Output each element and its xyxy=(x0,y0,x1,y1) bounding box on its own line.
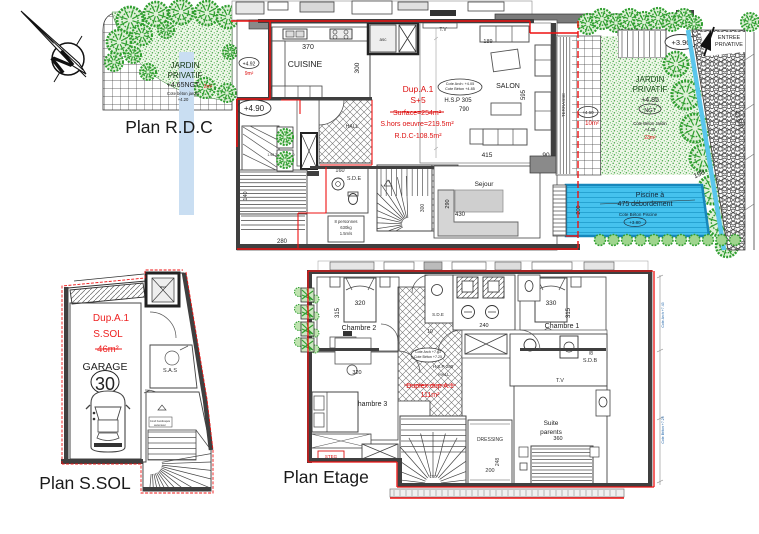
svg-text:JARDIN: JARDIN xyxy=(636,75,665,84)
svg-text:PRIVATIF: PRIVATIF xyxy=(633,85,668,94)
svg-text:asc: asc xyxy=(160,284,166,289)
svg-text:189: 189 xyxy=(483,39,492,45)
svg-text:DRESSING: DRESSING xyxy=(477,437,503,443)
svg-text:Cote béton jardin: Cote béton jardin xyxy=(167,91,200,96)
svg-text:Plan R.D.C: Plan R.D.C xyxy=(125,117,213,137)
svg-text:8 personnes: 8 personnes xyxy=(334,219,357,224)
svg-text:H.S.P 305: H.S.P 305 xyxy=(444,98,472,104)
svg-text:H.S.P 280: H.S.P 280 xyxy=(433,364,454,369)
svg-text:370: 370 xyxy=(302,44,314,51)
svg-text:JARDIN: JARDIN xyxy=(171,61,200,70)
svg-text:300: 300 xyxy=(420,204,426,213)
svg-text:T.V: T.V xyxy=(556,378,564,384)
svg-text:430: 430 xyxy=(455,212,466,218)
svg-text:Cote Arch +7.43: Cote Arch +7.43 xyxy=(415,350,441,354)
svg-text:+4.92: +4.92 xyxy=(243,62,256,68)
svg-text:111m²: 111m² xyxy=(421,392,440,399)
svg-text:315: 315 xyxy=(335,307,341,318)
svg-text:GARAGE: GARAGE xyxy=(83,361,128,373)
svg-text:Cote Béton Jardin: Cote Béton Jardin xyxy=(633,121,667,126)
svg-text:S.A.S: S.A.S xyxy=(163,368,177,374)
svg-text:Plan Etage: Plan Etage xyxy=(283,467,369,487)
svg-text:HALL: HALL xyxy=(438,372,450,377)
svg-text:Cote Béton +4.85: Cote Béton +4.85 xyxy=(445,87,475,91)
svg-text:+4.90: +4.90 xyxy=(244,104,265,113)
svg-text:Piscine à: Piscine à xyxy=(636,192,665,199)
svg-text:Duplex dup A.1: Duplex dup A.1 xyxy=(406,383,454,390)
svg-text:315: 315 xyxy=(566,307,572,318)
svg-text:1.5m/s: 1.5m/s xyxy=(340,231,353,236)
svg-text:46m²: 46m² xyxy=(97,344,119,355)
svg-text:Cote Arch: +4.05: Cote Arch: +4.05 xyxy=(446,82,474,86)
svg-text:+4.60: +4.60 xyxy=(582,110,594,115)
svg-text:ENTREE: ENTREE xyxy=(718,35,741,41)
svg-text:Dup.A.1: Dup.A.1 xyxy=(403,84,434,94)
svg-text:Suite: Suite xyxy=(544,420,559,427)
svg-text:HALL: HALL xyxy=(346,124,359,130)
svg-text:248: 248 xyxy=(495,458,501,467)
svg-text:200: 200 xyxy=(485,468,494,474)
svg-text:S.SOL: S.SOL xyxy=(93,329,123,340)
svg-text:TERRASSE: TERRASSE xyxy=(561,93,566,117)
svg-text:CUISINE: CUISINE xyxy=(288,59,323,69)
svg-text:Cond handicapés: Cond handicapés xyxy=(150,419,171,423)
svg-text:23m²: 23m² xyxy=(644,135,656,141)
svg-text:T.V: T.V xyxy=(439,27,447,33)
svg-text:240: 240 xyxy=(479,323,488,329)
svg-text:+4.85: +4.85 xyxy=(641,97,659,104)
svg-text:+4.20: +4.20 xyxy=(178,97,189,102)
svg-text:160: 160 xyxy=(429,474,437,479)
svg-text:Surface=254m²: Surface=254m² xyxy=(393,110,442,117)
svg-text:Chambre 2: Chambre 2 xyxy=(342,325,377,332)
svg-text:415: 415 xyxy=(482,152,493,159)
svg-text:S.D.E: S.D.E xyxy=(432,312,444,317)
svg-text:320: 320 xyxy=(355,300,366,307)
svg-text:SALON: SALON xyxy=(496,83,520,90)
svg-text:parents: parents xyxy=(540,429,562,436)
svg-text:R.D.C-108.5m²: R.D.C-108.5m² xyxy=(394,133,442,140)
svg-text:S.D.E: S.D.E xyxy=(347,176,362,182)
svg-text:595: 595 xyxy=(521,89,527,100)
svg-text:300: 300 xyxy=(354,62,361,73)
svg-text:Cote Béton Piscine: Cote Béton Piscine xyxy=(619,212,658,217)
svg-text:NGT: NGT xyxy=(644,108,656,114)
svg-text:320: 320 xyxy=(352,370,361,376)
svg-text:+4.35: +4.35 xyxy=(645,127,656,132)
svg-text:360: 360 xyxy=(553,436,562,442)
svg-text:Plan S.SOL: Plan S.SOL xyxy=(39,473,131,493)
svg-text:S+5: S+5 xyxy=(410,95,426,105)
svg-text:140: 140 xyxy=(243,191,249,200)
svg-text:Cote Béton +7.25: Cote Béton +7.25 xyxy=(661,416,665,443)
svg-text:S.D.B: S.D.B xyxy=(583,358,598,364)
svg-text:+4.65NGT: +4.65NGT xyxy=(167,82,200,89)
svg-text:630kg: 630kg xyxy=(340,225,352,230)
svg-text:PRIVATIF: PRIVATIF xyxy=(168,71,203,80)
svg-text:10: 10 xyxy=(427,329,433,335)
svg-text:10m²: 10m² xyxy=(585,121,599,127)
svg-text:+3.80: +3.80 xyxy=(629,220,641,225)
svg-text:S.hors oeuvre=219.5m²: S.hors oeuvre=219.5m² xyxy=(380,121,454,128)
svg-text:Cote Arch +7.43: Cote Arch +7.43 xyxy=(661,302,665,327)
svg-text:790: 790 xyxy=(459,107,470,113)
svg-text:330: 330 xyxy=(546,300,557,307)
svg-text:ascenseur: ascenseur xyxy=(154,423,166,427)
svg-text:290: 290 xyxy=(445,199,451,208)
svg-text:PRIVATIVE: PRIVATIVE xyxy=(715,42,743,48)
svg-text:Cote Béton +7.25: Cote Béton +7.25 xyxy=(414,355,442,359)
svg-text:asc: asc xyxy=(379,37,387,42)
svg-text:Dup.A.1: Dup.A.1 xyxy=(93,313,130,324)
svg-text:9m²: 9m² xyxy=(245,71,254,77)
svg-text:200: 200 xyxy=(576,205,582,214)
svg-text:Sejour: Sejour xyxy=(475,181,495,188)
svg-text:2m²: 2m² xyxy=(204,84,213,90)
